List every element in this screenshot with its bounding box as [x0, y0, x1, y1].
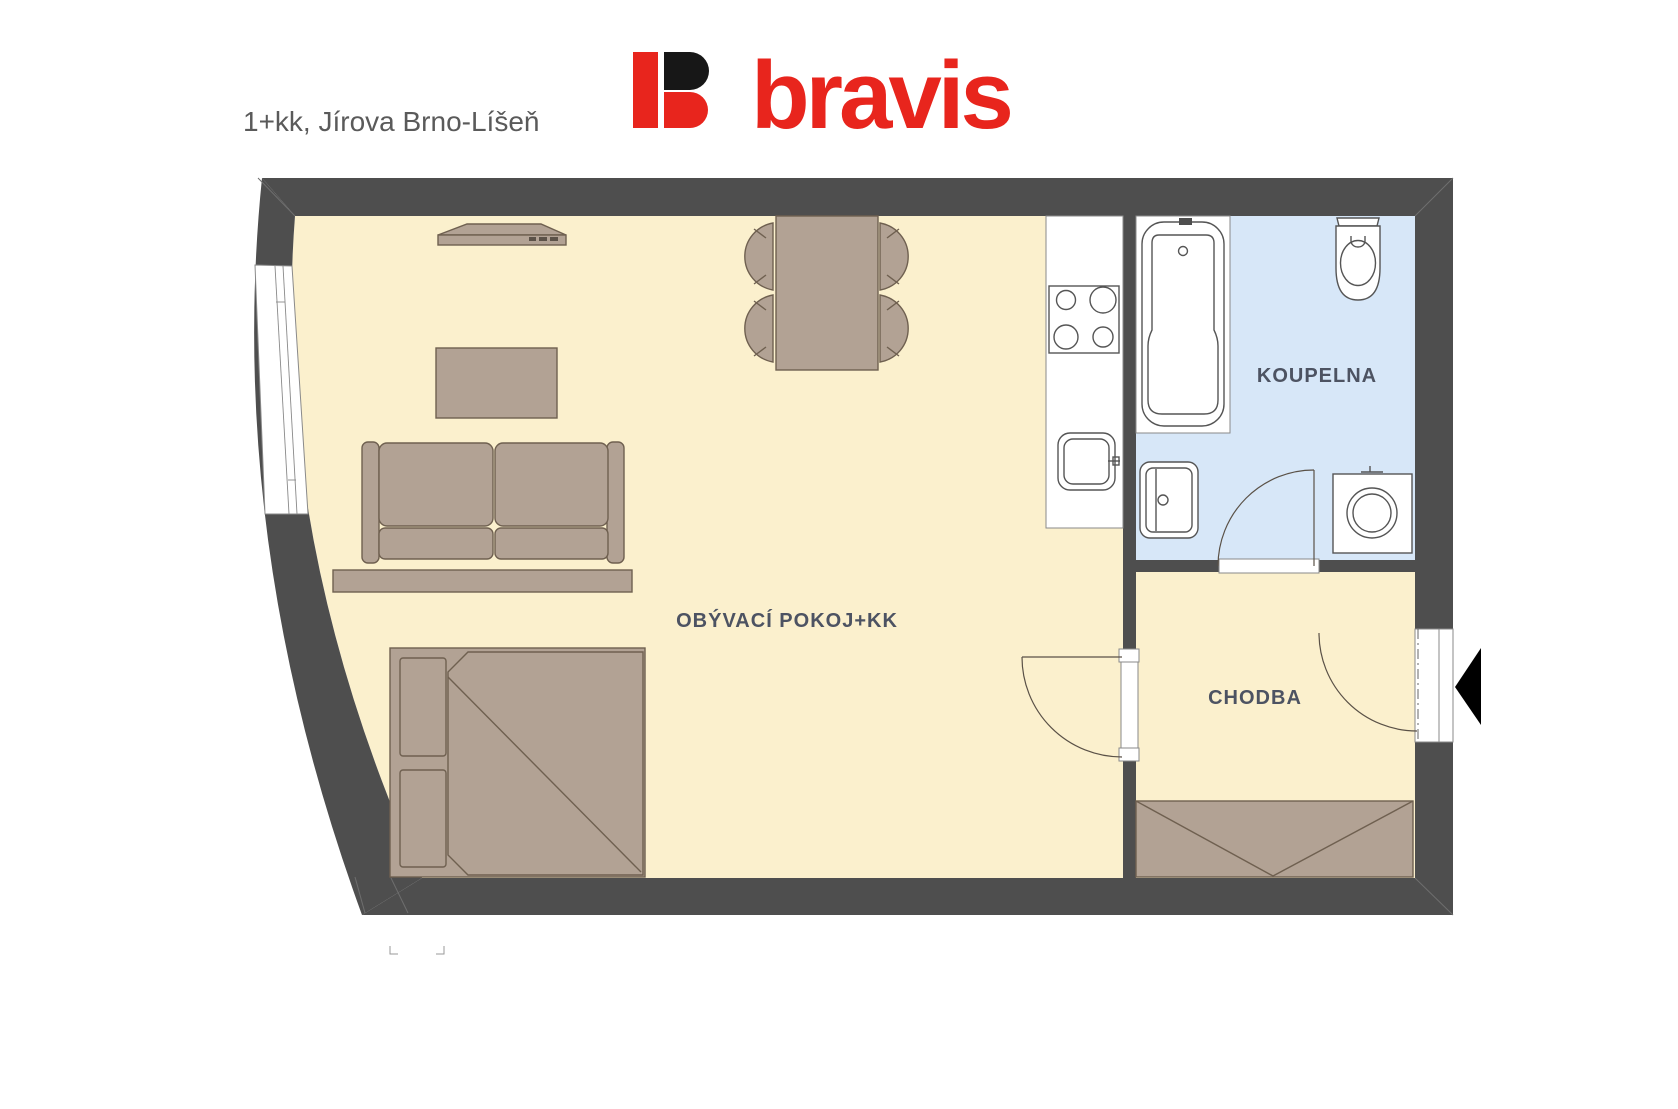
bathtub-icon [1136, 216, 1230, 433]
logo-b-bottom-icon [664, 92, 708, 128]
wall-top [262, 178, 1453, 216]
wardrobe-icon [1136, 801, 1413, 877]
coffee-table-icon [436, 348, 557, 418]
toilet-icon [1336, 218, 1380, 300]
bathtub-faucet [1179, 218, 1192, 225]
wall-bath-hall-left [1136, 560, 1219, 572]
wall-bottom [362, 878, 1453, 915]
tv-button [550, 237, 558, 241]
wall-living-hall-lower [1123, 761, 1136, 878]
tv-button [529, 237, 536, 241]
sideboard-icon [333, 570, 632, 592]
kitchen-sink-icon [1058, 433, 1120, 490]
sofa-icon [362, 442, 624, 563]
pillow [400, 658, 446, 756]
bed-icon [390, 648, 645, 877]
page-title: 1+kk, Jírova Brno-Líšeň [243, 106, 539, 137]
reference-ticks [390, 946, 444, 954]
washing-machine-icon [1333, 466, 1412, 553]
washbasin-icon [1140, 462, 1198, 538]
stove-icon [1049, 286, 1119, 353]
pillow [400, 770, 446, 867]
logo-bar-icon [633, 52, 658, 128]
dining-table-icon [776, 216, 878, 370]
wall-living-hall-upper [1123, 216, 1136, 649]
room-label-hallway: CHODBA [1208, 687, 1302, 709]
tv-button [539, 237, 547, 241]
floorplan-page: 1+kk, Jírova Brno-Líšeň bravis [0, 0, 1678, 1109]
tv-icon [438, 224, 566, 245]
bravis-logo: bravis [633, 42, 1010, 149]
wall-bath-hall-right [1319, 560, 1415, 572]
blanket [448, 652, 643, 875]
room-label-living: OBÝVACÍ POKOJ+KK [676, 608, 898, 632]
floor-plan: OBÝVACÍ POKOJ+KK KOUPELNA CHODBA [254, 178, 1481, 954]
logo-b-top-icon [664, 52, 709, 90]
entrance-arrow-icon [1455, 648, 1481, 725]
room-label-bathroom: KOUPELNA [1257, 365, 1377, 387]
wall-right-upper [1415, 178, 1453, 629]
logo-text: bravis [751, 42, 1010, 149]
